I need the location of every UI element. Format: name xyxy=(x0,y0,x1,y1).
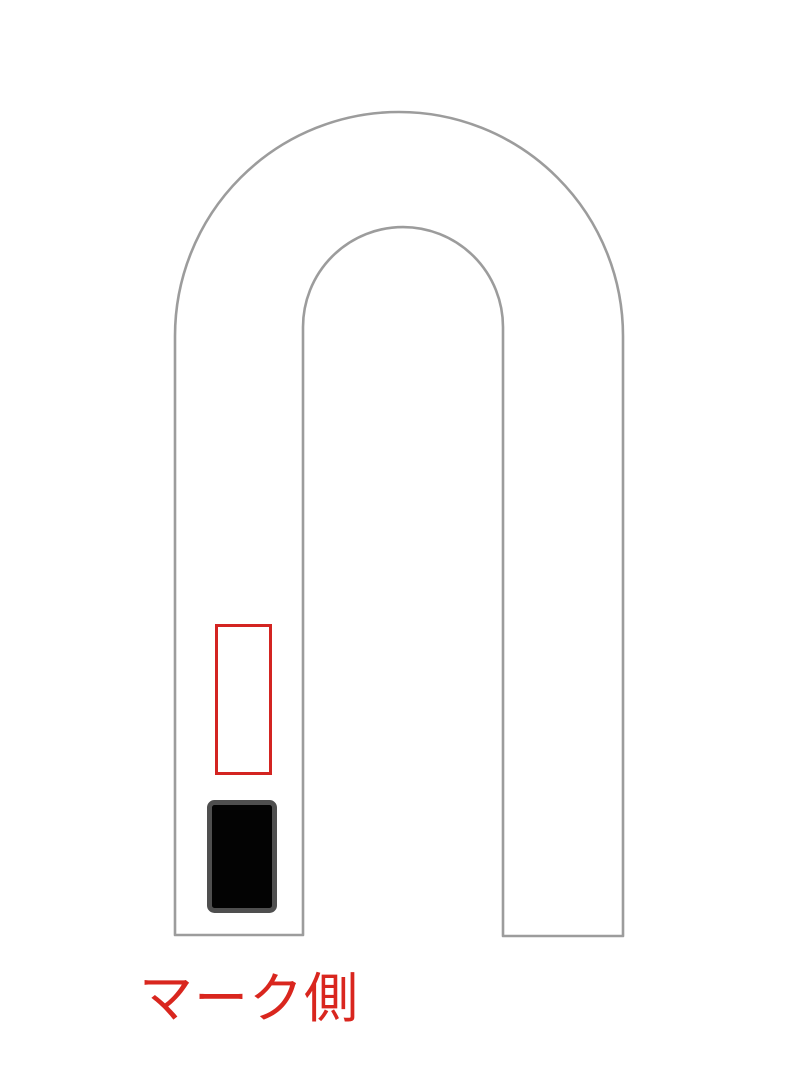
diagram-canvas: マーク側 xyxy=(0,0,800,1089)
mark-slot-empty-outline xyxy=(217,626,271,774)
mark-side-label: マーク側 xyxy=(139,967,359,1030)
mark-block-filled xyxy=(210,803,275,911)
